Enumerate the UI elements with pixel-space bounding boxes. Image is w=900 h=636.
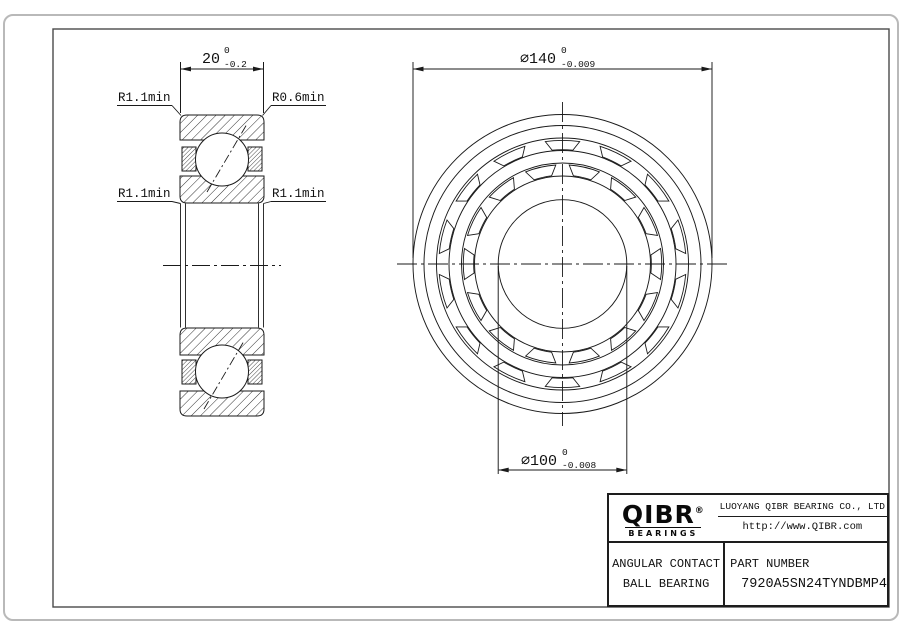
registered-trademark-icon: ® xyxy=(695,506,705,516)
ball-top xyxy=(196,133,249,186)
logo-text: QIBR xyxy=(622,500,695,529)
bearing-type-line1: ANGULAR CONTACT xyxy=(612,557,720,571)
front-view xyxy=(397,62,728,474)
arrowhead-right xyxy=(702,67,713,72)
ball-bottom xyxy=(196,345,249,398)
arrowhead-left xyxy=(498,468,509,473)
radius-label-top-left: R1.1min xyxy=(118,91,171,105)
arrowhead-left xyxy=(413,67,424,72)
part-number-value: 7920A5SN24TYNDBMP4 xyxy=(725,577,887,592)
bearing-type-cell: ANGULAR CONTACT BALL BEARING xyxy=(609,543,725,605)
dim-outer-tol-lower: -0.009 xyxy=(561,59,596,70)
cage-section xyxy=(182,360,196,384)
logo-subtext: BEARINGS xyxy=(625,527,701,538)
radius-label-bottom-right: R1.1min xyxy=(272,187,325,201)
dim-outer-value: ∅140 xyxy=(520,51,556,68)
dim-width xyxy=(181,62,264,113)
cage-section xyxy=(248,360,262,384)
logo: QIBR® BEARINGS xyxy=(609,495,718,541)
company-cell: LUOYANG QIBR BEARING CO., LTD http://www… xyxy=(718,495,887,541)
cage-section xyxy=(248,147,262,171)
company-website: http://www.QIBR.com xyxy=(718,517,887,533)
title-block: QIBR® BEARINGS LUOYANG QIBR BEARING CO.,… xyxy=(607,493,889,607)
radius-label-top-right: R0.6min xyxy=(272,91,325,105)
arrowhead-right xyxy=(616,468,627,473)
part-number-label: PART NUMBER xyxy=(725,557,887,571)
company-name: LUOYANG QIBR BEARING CO., LTD xyxy=(718,495,887,517)
logo-wordmark: QIBR® xyxy=(622,500,705,526)
arrowhead-left xyxy=(181,67,192,72)
dim-width-tol-lower: -0.2 xyxy=(224,59,247,70)
dim-bore-value: ∅100 xyxy=(521,453,557,470)
dim-outer-tol-upper: 0 xyxy=(561,45,567,56)
section-view xyxy=(117,62,326,416)
bearing-type-line2: BALL BEARING xyxy=(623,577,709,591)
title-block-detail-row: ANGULAR CONTACT BALL BEARING PART NUMBER… xyxy=(609,543,887,605)
arrowhead-right xyxy=(253,67,264,72)
dim-bore-tol-upper: 0 xyxy=(562,447,568,458)
radius-label-bottom-left: R1.1min xyxy=(118,187,171,201)
dim-bore-tol-lower: -0.008 xyxy=(562,460,597,471)
part-number-cell: PART NUMBER 7920A5SN24TYNDBMP4 xyxy=(725,543,887,605)
cage-section xyxy=(182,147,196,171)
dim-width-tol-upper: 0 xyxy=(224,45,230,56)
dim-width-value: 20 xyxy=(202,51,220,68)
title-block-header-row: QIBR® BEARINGS LUOYANG QIBR BEARING CO.,… xyxy=(609,495,887,543)
